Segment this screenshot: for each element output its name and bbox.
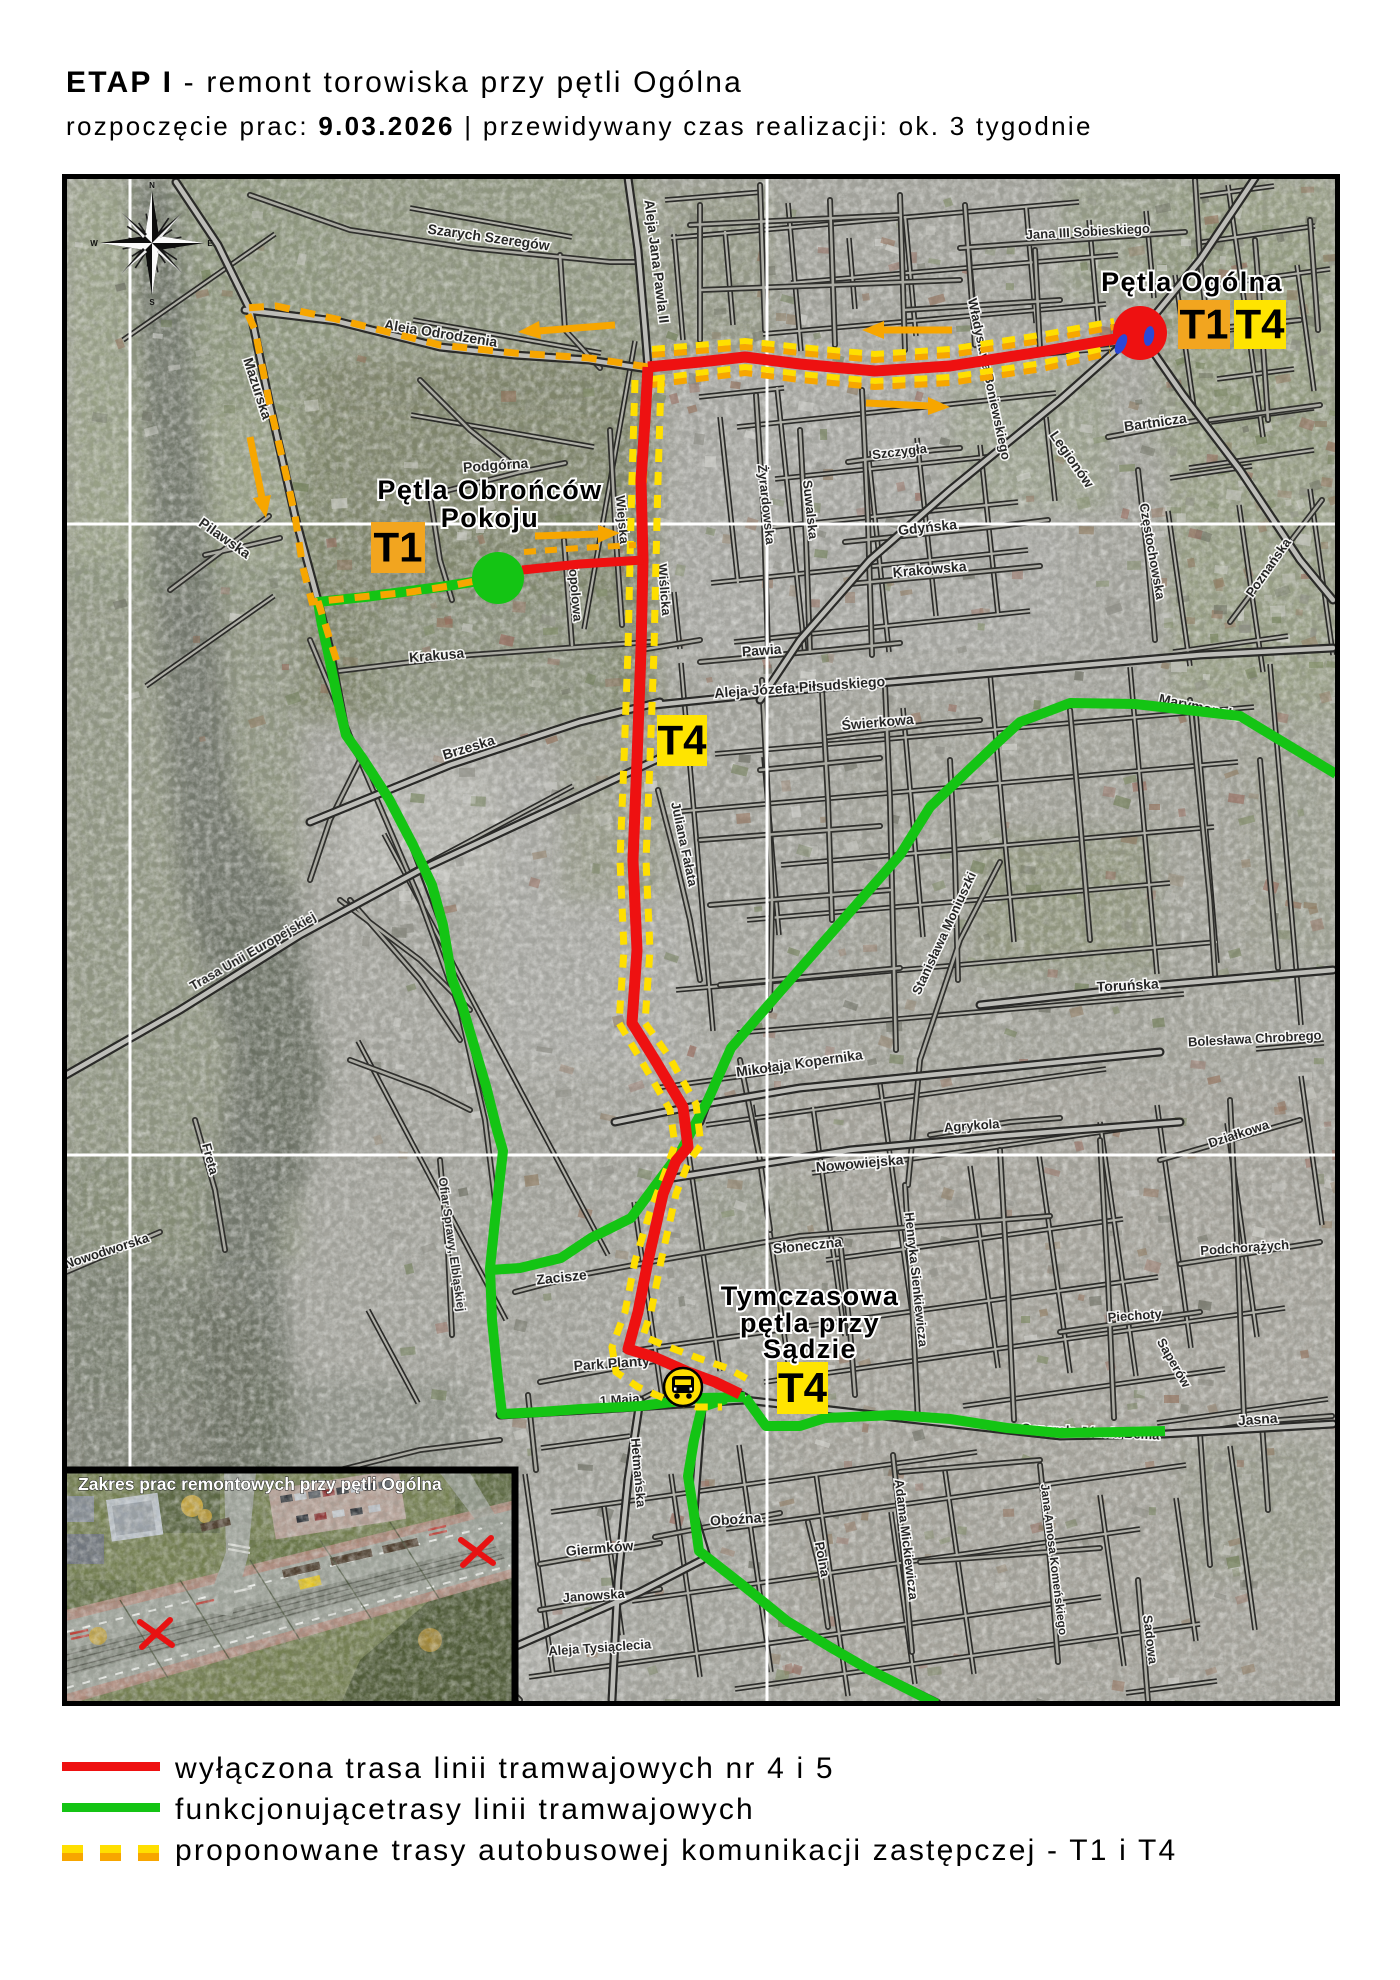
svg-text:proponowane trasy autobusowej: proponowane trasy autobusowej komunikacj… bbox=[175, 1834, 1177, 1867]
svg-text:Jasna: Jasna bbox=[1237, 1410, 1278, 1429]
svg-text:Sądzie: Sądzie bbox=[763, 1334, 857, 1364]
svg-text:Pętla Ogólna: Pętla Ogólna bbox=[1101, 267, 1283, 297]
svg-text:Pętla Obrońców: Pętla Obrońców bbox=[377, 475, 602, 505]
svg-text:N: N bbox=[149, 181, 155, 190]
svg-text:T1: T1 bbox=[1179, 301, 1228, 348]
svg-text:S: S bbox=[149, 298, 155, 307]
svg-text:wyłączona trasa linii tramwajo: wyłączona trasa linii tramwajowych nr 4 … bbox=[174, 1752, 835, 1785]
svg-text:T4: T4 bbox=[657, 717, 707, 764]
svg-text:Tymczasowa: Tymczasowa bbox=[721, 1281, 900, 1311]
svg-text:Toruńska: Toruńska bbox=[1096, 975, 1159, 994]
svg-text:T4: T4 bbox=[778, 1364, 828, 1411]
svg-text:Zakres prac remontowych przy p: Zakres prac remontowych przy pętli Ogóln… bbox=[78, 1474, 442, 1494]
svg-text:funkcjonującetrasy linii tramw: funkcjonującetrasy linii tramwajowych bbox=[175, 1793, 755, 1826]
svg-text:T4: T4 bbox=[1235, 301, 1285, 348]
svg-text:Pokoju: Pokoju bbox=[441, 503, 539, 533]
svg-text:Pawia: Pawia bbox=[741, 641, 782, 660]
svg-text:E: E bbox=[207, 239, 213, 248]
svg-text:W: W bbox=[90, 239, 98, 248]
svg-text:T1: T1 bbox=[373, 524, 422, 571]
